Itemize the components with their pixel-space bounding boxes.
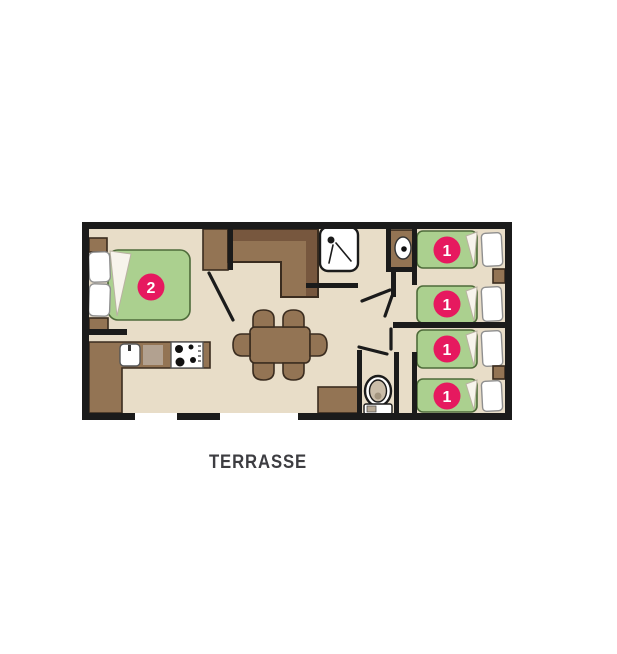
wall: [505, 222, 512, 420]
faucet-icon: [128, 345, 131, 351]
chair: [310, 334, 327, 356]
bed-marker-label: 2: [147, 280, 156, 297]
wall: [386, 229, 391, 272]
washbasin-drain-icon: [401, 246, 407, 252]
bedrooms-single: [417, 231, 505, 412]
wall: [306, 283, 358, 288]
pillow: [481, 380, 503, 411]
burner-icon: [190, 357, 196, 363]
wall: [393, 322, 505, 328]
chair: [283, 363, 304, 380]
nightstand: [493, 366, 505, 379]
wall: [82, 413, 135, 420]
nightstand: [89, 238, 107, 252]
toilet-bowl-detail: [375, 393, 382, 400]
wall: [394, 352, 399, 413]
pillow: [88, 252, 110, 283]
toilet-button-icon: [367, 406, 376, 412]
counter-pad: [143, 345, 163, 365]
shower-tray: [320, 227, 358, 271]
burner-icon: [189, 345, 194, 350]
bed-marker-label: 1: [443, 297, 452, 314]
wall: [82, 222, 89, 420]
wall: [412, 352, 417, 413]
bed-marker-label: 1: [443, 389, 452, 406]
burner-icon: [176, 358, 185, 367]
wall: [228, 229, 233, 270]
wall: [177, 413, 220, 420]
pillow: [88, 284, 110, 317]
chair: [283, 310, 304, 327]
wardrobe: [203, 229, 228, 270]
cabinet: [318, 387, 358, 413]
shower-head-icon: [328, 237, 335, 244]
wc: [364, 376, 392, 414]
terrace-label: TERRASSE: [103, 452, 413, 474]
wall: [386, 267, 416, 272]
bed-marker-label: 1: [443, 243, 452, 260]
floor-plan-drawing: 2 1 1 1 1: [82, 222, 512, 420]
wall: [82, 222, 512, 229]
nightstand: [493, 269, 505, 283]
chair: [233, 334, 250, 356]
burner-icon: [175, 345, 183, 353]
bed-marker-label: 1: [443, 342, 452, 359]
wall: [89, 329, 127, 335]
wall: [298, 413, 512, 420]
pillow: [481, 286, 503, 321]
chair: [253, 363, 274, 380]
chair: [253, 310, 274, 327]
floor-plan: 2 1 1 1 1: [82, 222, 512, 420]
wall: [391, 272, 396, 297]
wall: [412, 229, 417, 285]
pillow: [481, 330, 503, 366]
wall: [357, 350, 362, 413]
dining-table: [250, 327, 310, 363]
sofa-back: [229, 230, 317, 241]
pillow: [481, 232, 503, 266]
